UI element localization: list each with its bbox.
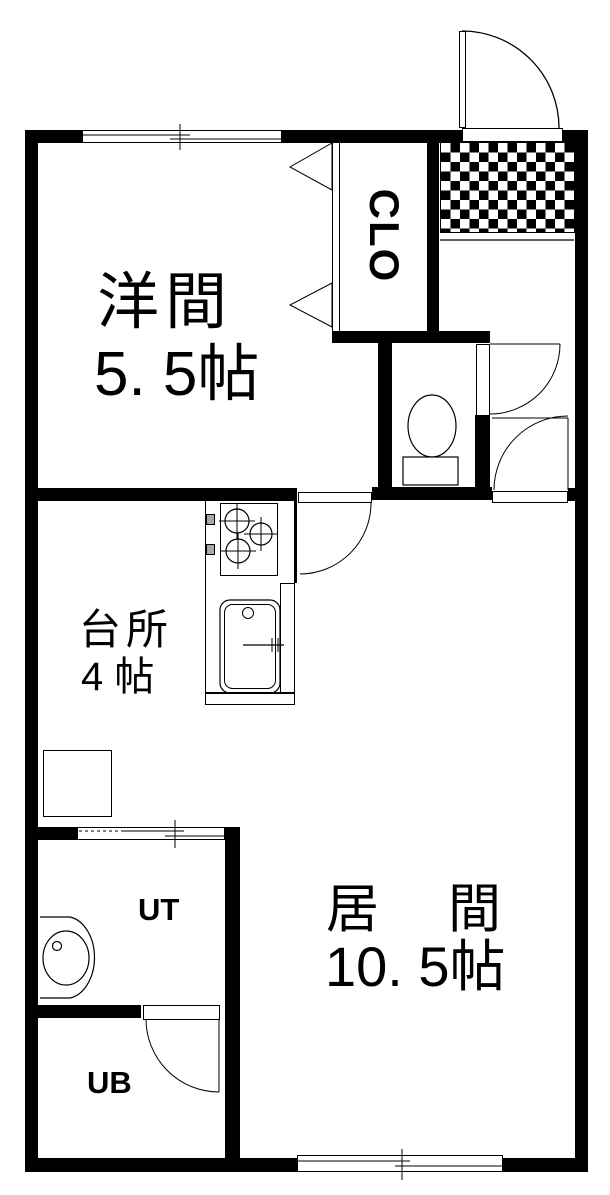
toilet-tank [403,457,458,485]
kitchen-door-arc [300,503,371,574]
room-size-kitchen: 4 帖 [81,657,154,697]
wall-bottom-right [503,1158,588,1172]
genkan-floor [440,142,575,233]
window-top [82,130,282,143]
wall-toilet-left [378,343,392,500]
closet-front-panel [332,143,340,331]
folding-door-icon-top [290,143,332,190]
wall-ut-top-left [25,827,77,840]
room-label-ub: UB [87,1067,132,1098]
living-door-leaf [492,491,568,503]
room-label-yokan: 洋間 [97,272,233,334]
entrance-door-arc [462,31,559,128]
kitchen-counter-front [205,693,295,705]
wall-utub-right [225,835,240,1158]
stove-knob-2 [206,544,215,555]
entrance-door-leaf [459,31,466,128]
wall-top-mid [282,130,462,143]
wall-closet-bottom [332,331,490,343]
room-size-yokan: 5. 5帖 [94,344,259,406]
folding-door-icon-bottom [290,283,332,327]
toilet-icon [408,395,456,457]
toilet-door-arc [490,344,560,414]
ub-door-leaf [143,1005,220,1020]
washer-pan [43,750,112,817]
stove-knob-1 [206,514,215,525]
ub-door-arc [146,1019,219,1092]
wall-ut-ub-divider [25,1005,141,1018]
wall-closet-right [427,143,439,331]
room-label-closet: CLO [363,189,405,284]
living-door-arc [494,416,568,490]
kitchen-door-leaf [298,492,372,503]
room-size-living: 10. 5帖 [325,939,506,995]
room-label-kitchen: 台所 [79,609,173,651]
basin-bowl [43,931,89,985]
toilet-door-leaf [476,344,490,416]
stove-icon [220,503,278,576]
wall-living-door-stub [568,488,588,501]
wall-corridor-bottom [372,487,492,500]
basin-icon [40,917,94,998]
room-label-ut: UT [138,894,179,925]
window-bottom [297,1155,503,1172]
kitchen-counter-edge [280,583,295,693]
room-label-living: 居 間 [326,883,509,936]
entrance-threshold [462,128,563,142]
wall-bottom-left [25,1158,297,1172]
window-ut [77,827,225,840]
wall-right [575,130,588,1172]
basin-tap [53,942,62,951]
floor-plan: 洋間 5. 5帖 台所 4 帖 居 間 10. 5帖 UT UB CLO [0,0,610,1195]
